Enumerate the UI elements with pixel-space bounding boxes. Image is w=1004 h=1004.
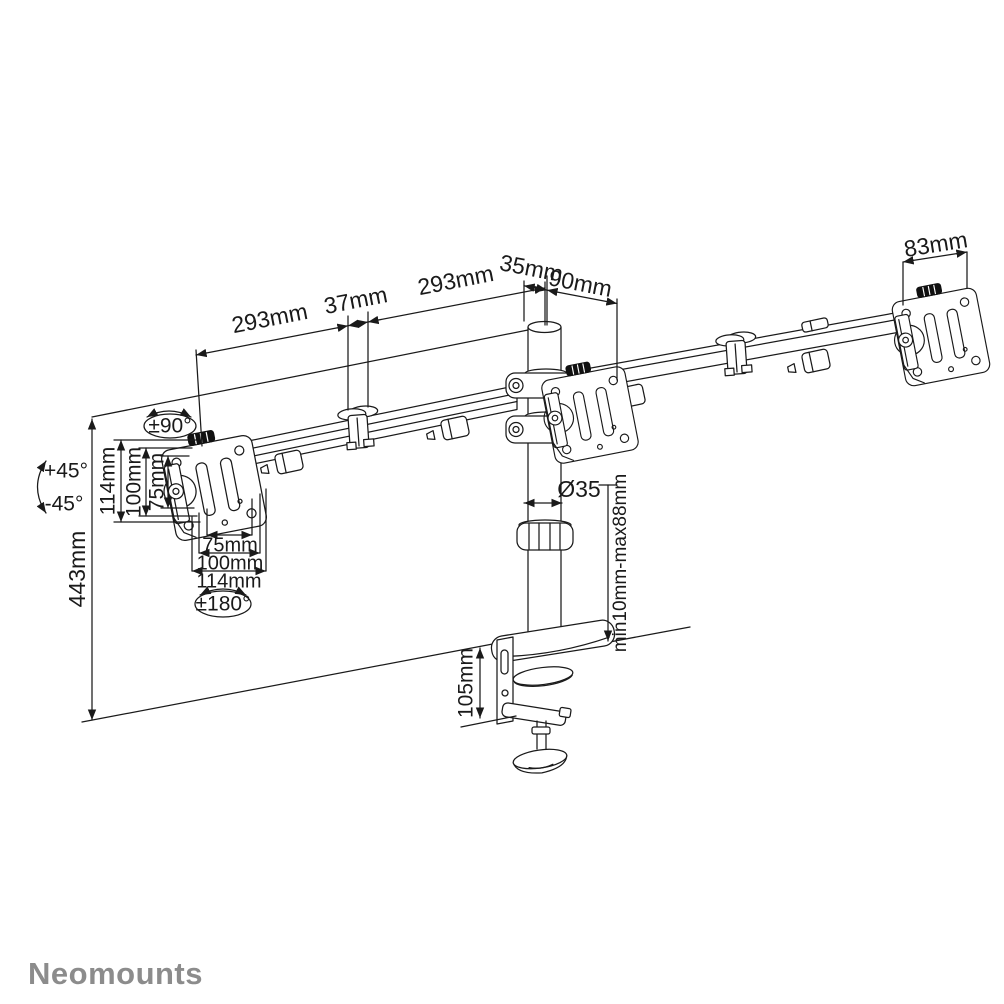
- desk-clamp: [490, 618, 617, 776]
- swivel-range-label: ±90°: [148, 415, 191, 438]
- pole: [528, 322, 561, 633]
- dim-label-pole-diameter: Ø35: [557, 476, 600, 502]
- tilt-up-label: +45°: [44, 460, 88, 483]
- dim-label-pole-to-plate-depth: 90mm: [547, 264, 615, 302]
- dim-arm-left-span: 293mm: [196, 298, 348, 446]
- rotation-range-indicator: ±180°: [195, 589, 251, 617]
- dim-label-clamp-height: 105mm: [455, 648, 478, 718]
- swivel-range-indicator: ±90°: [144, 411, 196, 438]
- dim-label-vesa-vertical-75: 75mm: [146, 453, 169, 511]
- dim-arm-joint-width: 37mm: [322, 281, 390, 410]
- dim-label-pole-height: 443mm: [64, 531, 90, 608]
- tilt-down-label: -45°: [45, 493, 84, 516]
- brand-logo: Neomounts: [28, 956, 203, 991]
- dim-label-arm-right-span: 293mm: [416, 260, 496, 300]
- left-vesa-plate: [154, 423, 268, 542]
- rotation-range-label: ±180°: [196, 593, 251, 616]
- cable-clip: [786, 349, 831, 377]
- dim-label-desk-thickness-range: min10mm-max88mm: [610, 474, 631, 652]
- mount-hardware: [154, 277, 991, 777]
- dim-pole-diameter: Ø35: [524, 476, 601, 503]
- technical-diagram: 293mm 37mm 293mm 35mm: [0, 0, 1004, 1004]
- desk-edge-left: [82, 643, 498, 722]
- tilt-range-indicator: +45° -45°: [38, 460, 89, 516]
- dim-label-vesa-vertical-114: 114mm: [97, 447, 120, 515]
- right-vesa-plate: [885, 277, 991, 388]
- dim-label-vesa-vertical-100: 100mm: [123, 447, 146, 517]
- dim-label-vesa-plate-width: 83mm: [902, 226, 969, 262]
- height-collar: [517, 520, 573, 550]
- dim-label-arm-left-span: 293mm: [230, 298, 310, 338]
- dim-label-arm-joint-width: 37mm: [322, 281, 390, 319]
